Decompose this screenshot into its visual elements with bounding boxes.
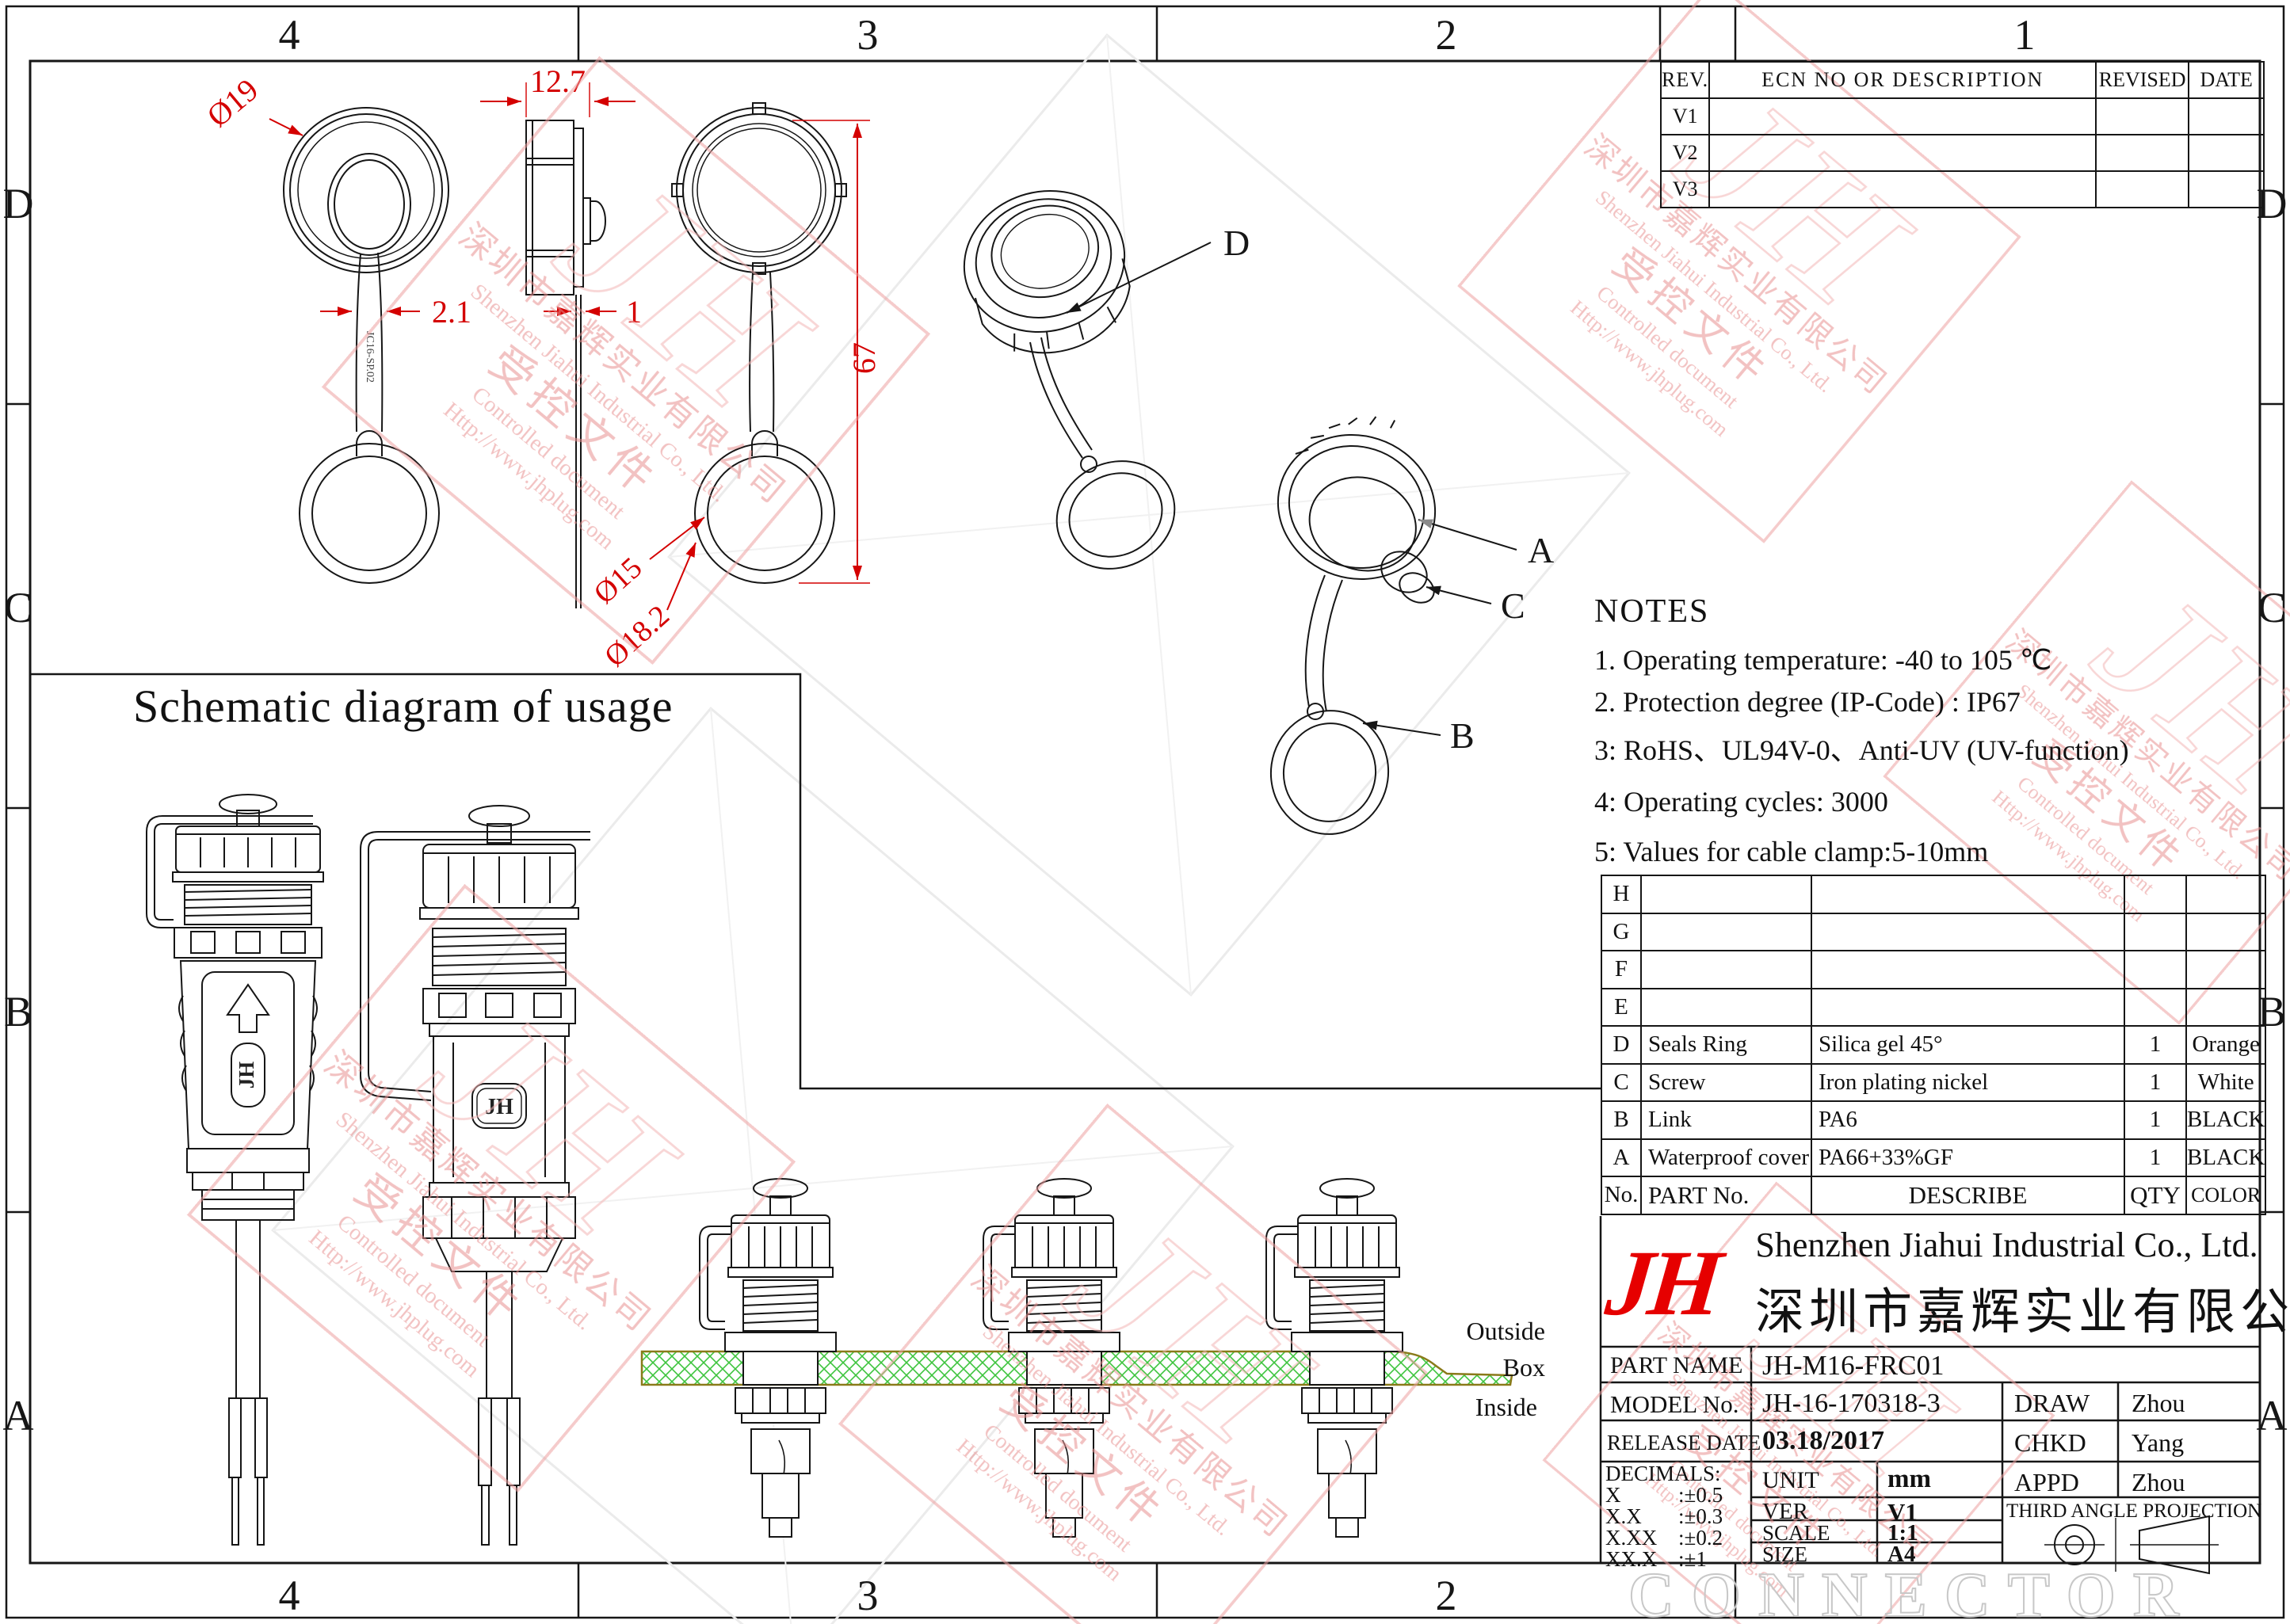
ecn-cell — [1709, 135, 2096, 171]
describe-cell: PA6 — [1811, 1101, 2124, 1139]
describe-cell — [1811, 951, 2124, 989]
decimals-xx: X.X — [1605, 1506, 1678, 1527]
ecn-cell — [1709, 98, 2096, 135]
zone-row-c-left: C — [4, 584, 32, 631]
ecn-cell — [1709, 171, 2096, 208]
iso-cap-drawing — [1259, 393, 1517, 842]
qty-cell — [2124, 913, 2186, 951]
revised-cell — [2096, 135, 2189, 171]
part-cell — [1641, 951, 1811, 989]
row-letter: H — [1601, 875, 1641, 913]
zone-col-1-top: 1 — [2014, 11, 2036, 59]
decimals-x-tol: :±0.5 — [1678, 1483, 1723, 1507]
body-logo-1: JH — [235, 1062, 258, 1089]
part-name-value: JH-M16-FRC01 — [1762, 1350, 1944, 1382]
decimals-x: X — [1605, 1485, 1678, 1506]
decimals-xxxx-tol: :±1 — [1678, 1547, 1707, 1571]
model-value: JH-16-170318-3 — [1762, 1389, 1941, 1419]
callout-labels: D A C B — [1223, 223, 1554, 756]
color-cell — [2186, 875, 2265, 913]
ecn-header: ECN NO OR DESCRIPTION — [1709, 62, 2096, 98]
parts-row-c: C Screw Iron plating nickel 1 White — [1601, 1064, 2265, 1102]
zone-row-c-right: C — [2258, 584, 2286, 631]
dim-side-width: 12.7 — [530, 63, 586, 99]
color-cell: BLACK — [2186, 1101, 2265, 1139]
callout-a: A — [1528, 530, 1554, 570]
describe-header: DESCRIBE — [1811, 1176, 2124, 1214]
part-cell — [1641, 875, 1811, 913]
part-cell — [1641, 989, 1811, 1027]
revised-cell — [2096, 98, 2189, 135]
qty-cell — [2124, 875, 2186, 913]
parts-row-h: H — [1601, 875, 2265, 913]
row-letter: E — [1601, 989, 1641, 1027]
parts-row-d: D Seals Ring Silica gel 45° 1 Orange — [1601, 1026, 2265, 1064]
note-line-1: 1. Operating temperature: -40 to 105 ℃ — [1594, 643, 2129, 677]
describe-cell: PA66+33%GF — [1811, 1139, 2124, 1177]
rev-cell: V3 — [1661, 171, 1709, 208]
box-label: Box — [1418, 1353, 1545, 1382]
company-name-cn: 深圳市嘉辉实业有限公司 — [1755, 1271, 2258, 1343]
qty-cell: 1 — [2124, 1101, 2186, 1139]
date-header: DATE — [2189, 62, 2264, 98]
drawing-sheet: JH 深圳市嘉辉实业有限公司 Shenzhen Jiahui Industria… — [0, 0, 2290, 1624]
draw-label: DRAW — [2014, 1389, 2090, 1418]
front-view-drawing: JC16-SP.02 — [284, 108, 448, 583]
notes-title: NOTES — [1594, 593, 2129, 631]
company-name-en: Shenzhen Jiahui Industrial Co., Ltd. — [1755, 1225, 2258, 1265]
row-letter: F — [1601, 951, 1641, 989]
appd-label: APPD — [2014, 1468, 2079, 1497]
parts-row-f: F — [1601, 951, 2265, 989]
row-letter: A — [1601, 1139, 1641, 1177]
zone-col-2-top: 2 — [1436, 11, 1457, 59]
dim-overall-height: 67 — [846, 342, 882, 374]
unit-label: UNIT — [1762, 1467, 1819, 1494]
part-cell: Waterproof cover — [1641, 1139, 1811, 1177]
rev-cell: V2 — [1661, 135, 1709, 171]
revision-header-row: REV. ECN NO OR DESCRIPTION REVISED DATE — [1661, 62, 2264, 98]
part-header: PART No. — [1641, 1176, 1811, 1214]
release-label: RELEASE DATE — [1607, 1431, 1761, 1455]
decimals-row: XX.X:±1 — [1605, 1549, 1723, 1570]
plug-connector-1-drawing: JH — [147, 795, 323, 1545]
release-value: 03.18/2017 — [1762, 1426, 1884, 1456]
qty-cell: 1 — [2124, 1064, 2186, 1102]
parts-row-a: A Waterproof cover PA66+33%GF 1 BLACK — [1601, 1139, 2265, 1177]
describe-cell: Iron plating nickel — [1811, 1064, 2124, 1102]
qty-cell: 1 — [2124, 1139, 2186, 1177]
zone-col-3-bottom: 3 — [857, 1572, 879, 1619]
zone-row-d-left: D — [3, 180, 34, 227]
callout-d: D — [1223, 223, 1250, 263]
describe-cell — [1811, 913, 2124, 951]
qty-header: QTY — [2124, 1176, 2186, 1214]
decimals-block: DECIMALS: X:±0.5 X.X:±0.3 X.XX:±0.2 XX.X… — [1605, 1463, 1723, 1570]
dim-strap-width: 2.1 — [432, 294, 471, 330]
rev-cell: V1 — [1661, 98, 1709, 135]
parts-row-g: G — [1601, 913, 2265, 951]
qty-cell — [2124, 951, 2186, 989]
row-letter: G — [1601, 913, 1641, 951]
appd-value: Zhou — [2132, 1468, 2185, 1497]
color-header: COLOR — [2186, 1176, 2265, 1214]
revised-cell — [2096, 171, 2189, 208]
dim-cap-diameter: Ø19 — [200, 71, 265, 134]
projection-label: THIRD ANGLE PROJECTION — [2006, 1500, 2257, 1523]
chkd-value: Yang — [2132, 1428, 2184, 1458]
no-header: No. — [1601, 1176, 1641, 1214]
draw-value: Zhou — [2132, 1389, 2185, 1418]
describe-cell: Silica gel 45° — [1811, 1026, 2124, 1064]
decimals-xxxx: XX.X — [1605, 1549, 1678, 1570]
date-cell — [2189, 98, 2264, 135]
part-cell: Link — [1641, 1101, 1811, 1139]
decimals-xxx-tol: :±0.2 — [1678, 1526, 1723, 1550]
schematic-title: Schematic diagram of usage — [133, 680, 673, 733]
size-label: SIZE — [1762, 1542, 1807, 1567]
color-cell: White — [2186, 1064, 2265, 1102]
part-cell — [1641, 913, 1811, 951]
decimals-row: X:±0.5 — [1605, 1485, 1723, 1506]
unit-value: mm — [1887, 1465, 1931, 1494]
revision-table: REV. ECN NO OR DESCRIPTION REVISED DATE … — [1660, 61, 2265, 208]
zone-col-2-bottom: 2 — [1436, 1572, 1457, 1619]
decimals-label: DECIMALS: — [1605, 1463, 1723, 1485]
note-line-4: 4: Operating cycles: 3000 — [1594, 785, 2129, 818]
revised-header: REVISED — [2096, 62, 2189, 98]
color-cell — [2186, 989, 2265, 1027]
color-cell: Orange — [2186, 1026, 2265, 1064]
zone-row-a-right: A — [2257, 1392, 2288, 1439]
color-cell — [2186, 913, 2265, 951]
callout-c: C — [1501, 585, 1525, 626]
zone-col-4-top: 4 — [279, 11, 300, 59]
parts-row-b: B Link PA6 1 BLACK — [1601, 1101, 2265, 1139]
decimals-xxx: X.XX — [1605, 1527, 1678, 1549]
decimals-xx-tol: :±0.3 — [1678, 1504, 1723, 1528]
parts-row-e: E — [1601, 989, 2265, 1027]
date-cell — [2189, 135, 2264, 171]
parts-table: H G F E D Seals Ring Silica gel 45° 1 Or… — [1601, 875, 2266, 1215]
describe-cell — [1811, 989, 2124, 1027]
note-line-5: 5: Values for cable clamp:5-10mm — [1594, 835, 2129, 868]
outside-label: Outside — [1379, 1317, 1545, 1346]
revision-row-v1: V1 — [1661, 98, 2264, 135]
parts-header-row: No. PART No. DESCRIBE QTY COLOR — [1601, 1176, 2265, 1214]
zone-col-4-bottom: 4 — [279, 1572, 300, 1619]
chkd-label: CHKD — [2014, 1428, 2086, 1458]
part-cell: Screw — [1641, 1064, 1811, 1102]
inside-label: Inside — [1371, 1393, 1537, 1422]
revision-row-v2: V2 — [1661, 135, 2264, 171]
revision-row-v3: V3 — [1661, 171, 2264, 208]
notes-block: NOTES 1. Operating temperature: -40 to 1… — [1594, 593, 2129, 868]
qty-cell: 1 — [2124, 1026, 2186, 1064]
row-letter: D — [1601, 1026, 1641, 1064]
note-line-3: 3: RoHS、UL94V-0、Anti-UV (UV-function) — [1594, 727, 2129, 768]
rev-header: REV. — [1661, 62, 1709, 98]
dim-ring-inner: Ø15 — [588, 551, 649, 611]
model-label: MODEL No. — [1610, 1390, 1738, 1419]
row-letter: C — [1601, 1064, 1641, 1102]
decimals-row: X.X:±0.3 — [1605, 1506, 1723, 1527]
color-cell: BLACK — [2186, 1139, 2265, 1177]
date-cell — [2189, 171, 2264, 208]
zone-row-b-left: B — [4, 988, 32, 1035]
iso-nut-drawing — [948, 173, 1211, 588]
part-name-label: PART NAME — [1610, 1352, 1742, 1379]
zone-row-a-left: A — [3, 1392, 34, 1439]
note-line-2: 2. Protection degree (IP-Code) : IP67 — [1594, 685, 2129, 719]
describe-cell — [1811, 875, 2124, 913]
company-logo: JH — [1601, 1229, 1723, 1337]
decimals-row: X.XX:±0.2 — [1605, 1527, 1723, 1549]
qty-cell — [2124, 989, 2186, 1027]
size-value: A4 — [1887, 1542, 1915, 1568]
part-cell: Seals Ring — [1641, 1026, 1811, 1064]
connector-watermark: CONNECTOR — [1628, 1561, 2196, 1624]
row-letter: B — [1601, 1101, 1641, 1139]
color-cell — [2186, 951, 2265, 989]
callout-b: B — [1450, 715, 1475, 756]
zone-col-3-top: 3 — [857, 11, 879, 59]
